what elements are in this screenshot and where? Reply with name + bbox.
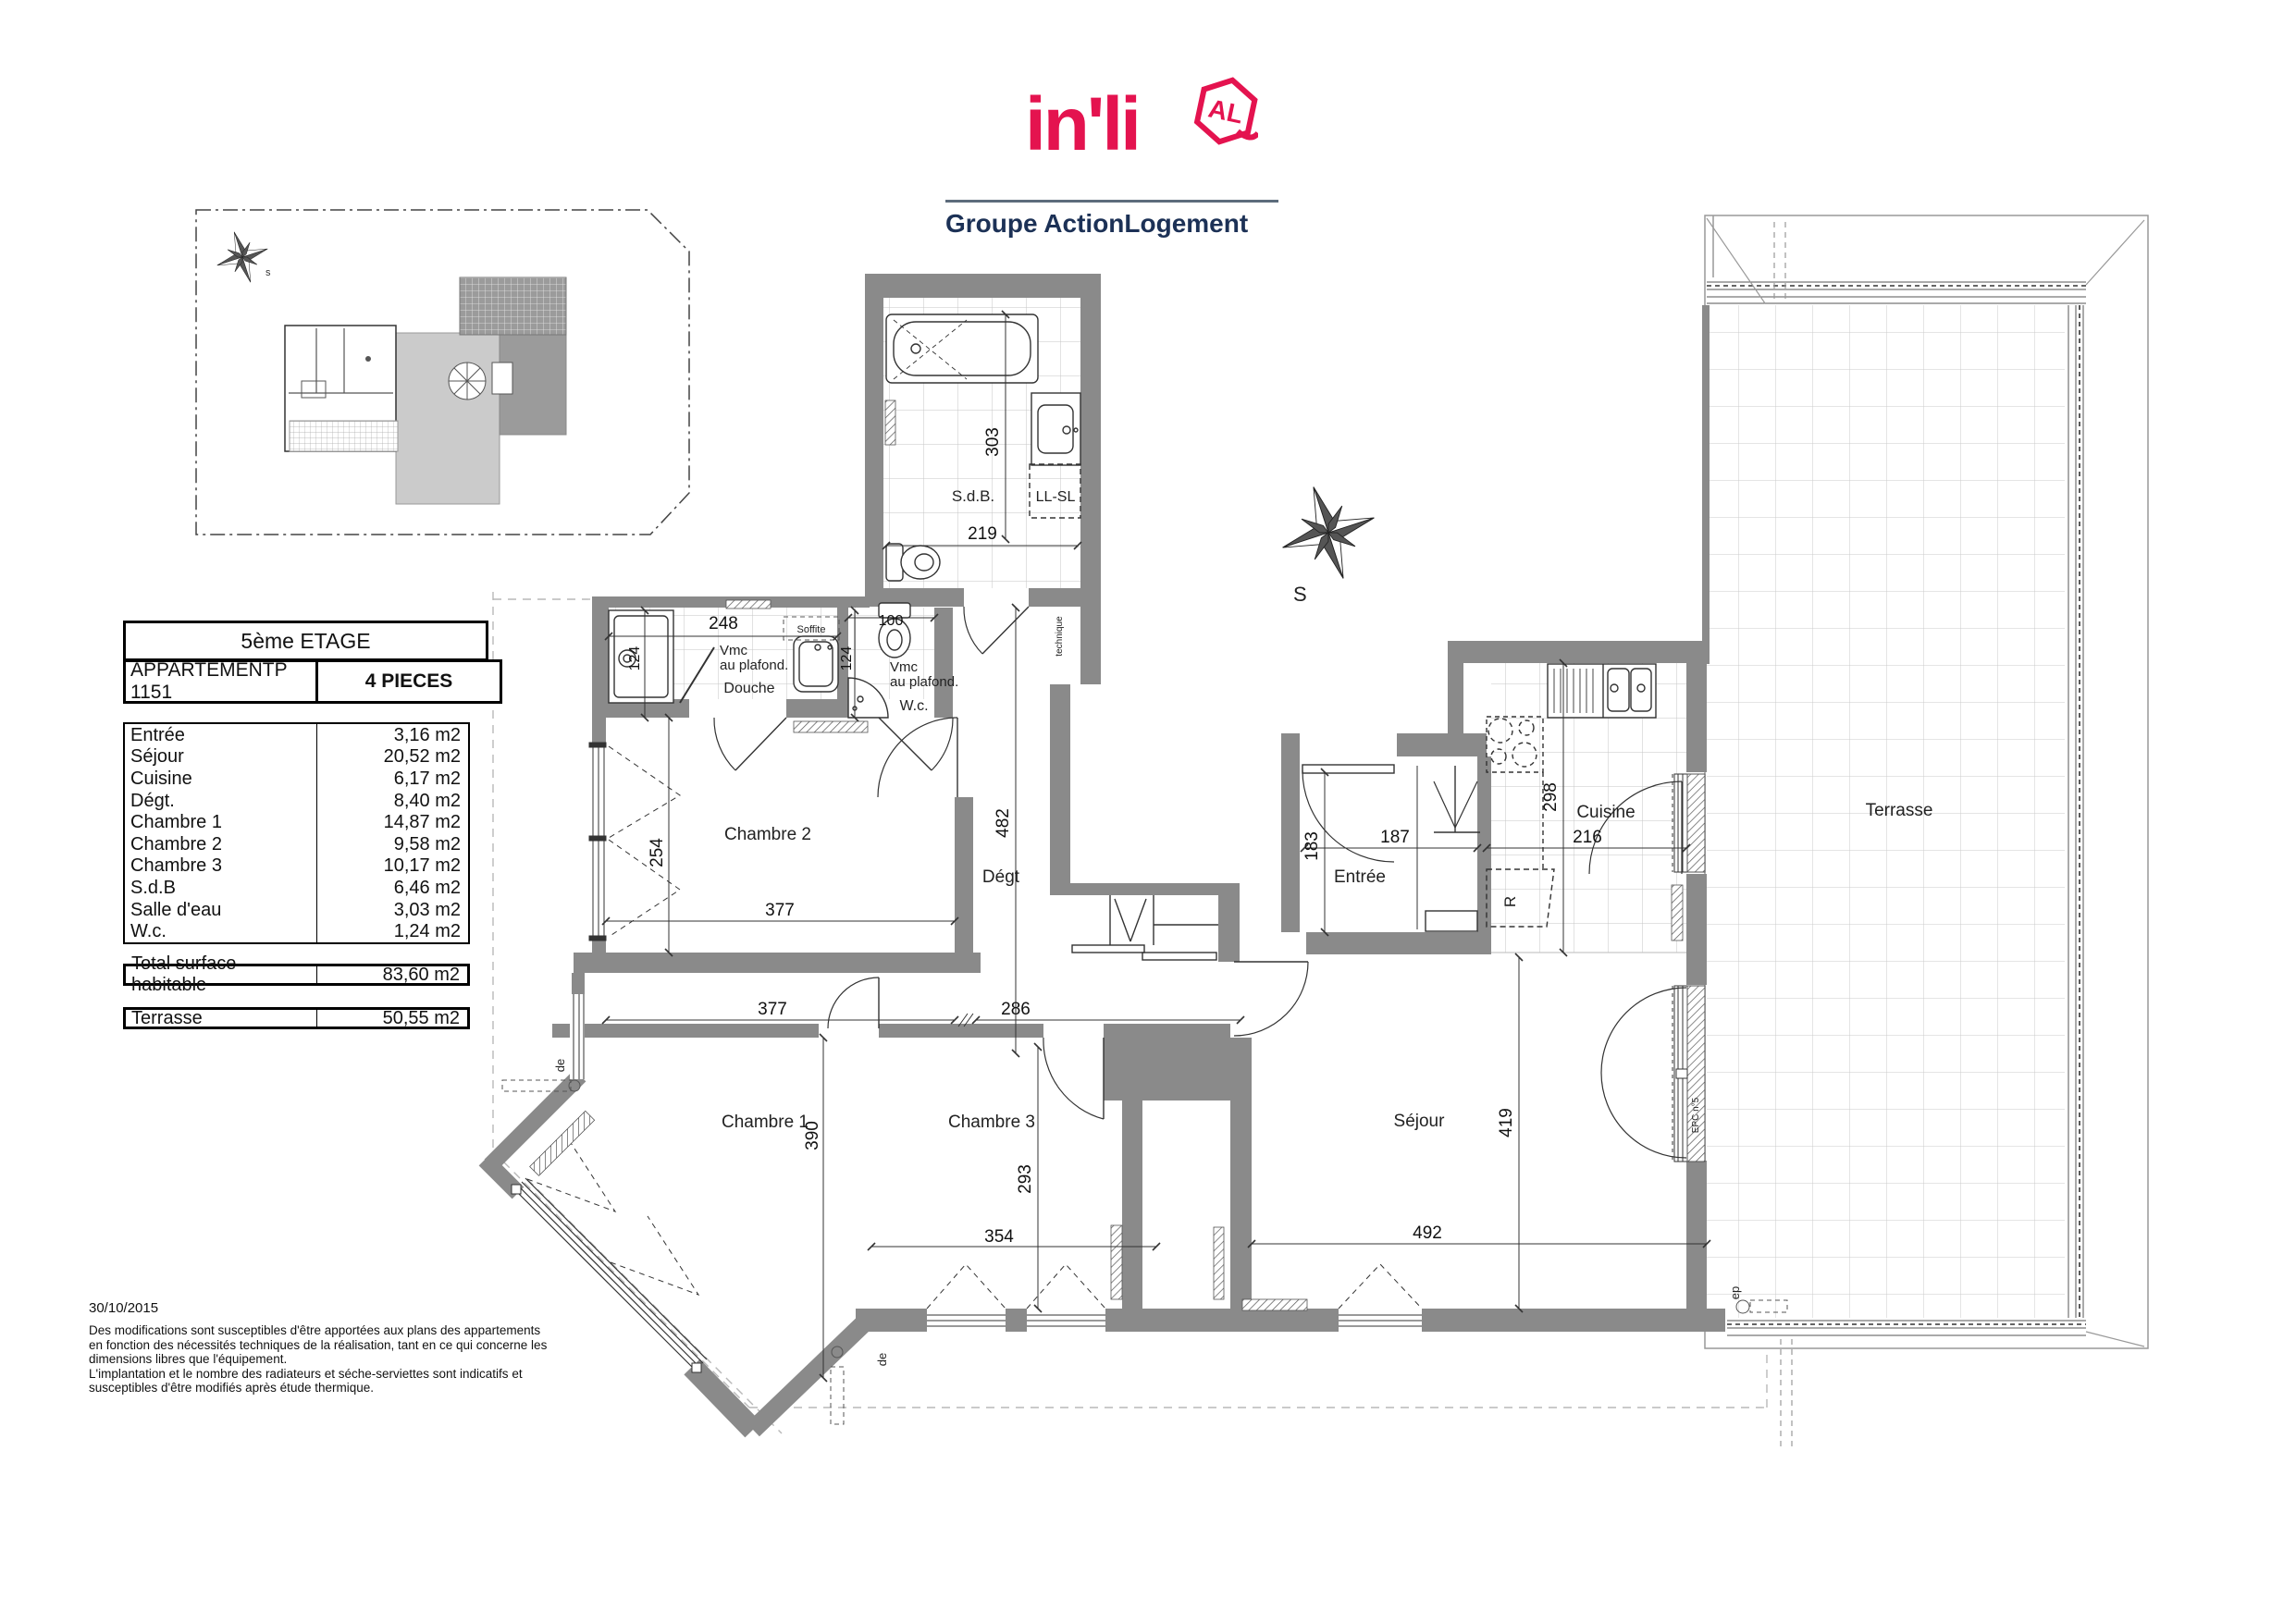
door-sejour xyxy=(1234,962,1308,1036)
apartment-row: APPARTEMENTP 1151 4 PIECES xyxy=(123,659,502,704)
room-name: Entrée xyxy=(125,726,316,744)
label-soffite: Soffite xyxy=(797,624,826,635)
terrace-label: Terrasse xyxy=(126,1010,317,1027)
logo-divider xyxy=(945,200,1278,203)
dim-entree-h: 183 xyxy=(1302,831,1322,861)
floor-plan-sheet: s xyxy=(0,0,2296,1623)
logo-tagline: Groupe ActionLogement xyxy=(945,209,1248,239)
plan-date: 30/10/2015 xyxy=(89,1300,570,1316)
label-chambre3: Chambre 3 xyxy=(948,1113,1035,1132)
radiator-sdb xyxy=(885,400,895,445)
site-plan: s xyxy=(196,210,689,535)
soffit-hatch-2 xyxy=(794,721,868,732)
soffit-hatch-1 xyxy=(726,600,771,609)
table-row: Chambre 114,87 m2 xyxy=(125,813,468,831)
window-sejour xyxy=(1339,1264,1422,1329)
label-degt: Dégt xyxy=(982,867,1020,887)
radiator-chambre3 xyxy=(1111,1225,1122,1299)
compass-south-label: S xyxy=(1293,583,1307,606)
sdb-washbasin xyxy=(1031,393,1080,465)
dim-cuisine-h: 298 xyxy=(1541,782,1561,812)
dim-wc-h: 124 xyxy=(839,646,855,671)
site-roof-terrace xyxy=(460,277,566,335)
bathtub xyxy=(886,314,1038,383)
dim-hall-right: 286 xyxy=(1001,1000,1031,1019)
logo-brand: in'li xyxy=(1025,81,1139,168)
room-name: Cuisine xyxy=(125,769,316,788)
room-area: 14,87 m2 xyxy=(316,813,468,831)
room-area: 6,46 m2 xyxy=(316,879,468,897)
footer-disclaimer: 30/10/2015 Des modifications sont suscep… xyxy=(89,1300,570,1396)
wc-toilet xyxy=(879,603,910,658)
window-chambre3-b xyxy=(1027,1264,1105,1329)
room-name: Chambre 1 xyxy=(125,813,316,831)
kitchen-sink-unit xyxy=(1548,664,1656,718)
dim-hall-left: 377 xyxy=(758,1000,787,1019)
dim-cuisine-w: 216 xyxy=(1573,828,1602,847)
apartment-type: 4 PIECES xyxy=(318,662,500,701)
logo-badge-icon: AL xyxy=(1193,74,1258,150)
table-row: Salle d'eau3,03 m2 xyxy=(125,901,468,919)
label-sejour: Séjour xyxy=(1394,1112,1446,1131)
room-area: 3,03 m2 xyxy=(316,901,468,919)
label-de-1: de xyxy=(553,1059,567,1072)
terrace-area-row: Terrasse 50,55 m2 xyxy=(123,1007,470,1029)
site-building-mass xyxy=(396,333,500,504)
french-door-sejour-terrasse xyxy=(1601,986,1705,1162)
window-chambre3-a xyxy=(927,1264,1006,1329)
room-name: Salle d'eau xyxy=(125,901,316,919)
label-vmc1-line2: au plafond. xyxy=(720,658,788,673)
label-chambre2: Chambre 2 xyxy=(724,825,811,844)
label-duct: technique xyxy=(1055,616,1065,657)
radiator-cuisine xyxy=(1672,885,1683,941)
door-salle-eau xyxy=(714,718,786,770)
room-name: S.d.B xyxy=(125,879,316,897)
label-door-ref: EPC n°5 xyxy=(1691,1097,1701,1133)
site-compass-icon xyxy=(209,224,276,290)
dim-sdb-w: 219 xyxy=(968,524,997,544)
label-de-2: de xyxy=(875,1353,889,1366)
table-row: Entrée3,16 m2 xyxy=(125,726,468,744)
door-chambre2 xyxy=(878,718,957,797)
compass-icon xyxy=(1267,472,1389,593)
room-name: Chambre 2 xyxy=(125,835,316,854)
label-sdb: S.d.B. xyxy=(952,487,994,505)
dim-ch2-w: 377 xyxy=(765,901,795,920)
disclaimer-line: L'implantation et le nombre des radiateu… xyxy=(89,1367,570,1382)
room-area: 8,40 m2 xyxy=(316,792,468,810)
door-chambre1 xyxy=(828,977,879,1028)
room-name: Chambre 3 xyxy=(125,856,316,875)
disclaimer-line: en fonction des nécessités techniques de… xyxy=(89,1338,570,1353)
dim-sejour-h: 419 xyxy=(1497,1108,1516,1137)
site-elevator-icon xyxy=(492,363,512,394)
terrace-value: 50,55 m2 xyxy=(317,1008,467,1029)
label-fridge: R xyxy=(1501,896,1519,907)
door-sdb xyxy=(964,607,1029,654)
tiled-floors xyxy=(609,298,2065,1318)
site-unit-dot xyxy=(365,356,371,362)
door-chambre3 xyxy=(1043,1038,1104,1119)
table-row: Séjour20,52 m2 xyxy=(125,747,468,766)
room-area-table: Entrée3,16 m2 Séjour20,52 m2 Cuisine6,17… xyxy=(123,722,470,944)
radiator-sejour-bottom xyxy=(1242,1299,1307,1310)
label-wc: W.c. xyxy=(899,698,928,714)
dim-sejour-w: 492 xyxy=(1413,1223,1442,1243)
label-ep: ep xyxy=(1728,1286,1742,1299)
room-name: Séjour xyxy=(125,747,316,766)
site-terrace-tiles xyxy=(290,421,398,451)
label-vmc2-line1: Vmc xyxy=(890,659,919,675)
label-douche: Douche xyxy=(723,681,774,696)
label-entree: Entrée xyxy=(1334,867,1386,887)
label-vmc2-line2: au plafond. xyxy=(890,674,958,690)
dim-ch3-w: 354 xyxy=(984,1227,1014,1247)
total-area-row: Total surface habitable 83,60 m2 xyxy=(123,964,470,986)
room-name: W.c. xyxy=(125,922,316,941)
door-wc xyxy=(879,718,953,770)
site-stair-icon xyxy=(449,363,486,400)
site-compass-label: s xyxy=(265,267,271,278)
room-area: 3,16 m2 xyxy=(316,726,468,744)
table-row: Chambre 29,58 m2 xyxy=(125,835,468,854)
room-area: 9,58 m2 xyxy=(316,835,468,854)
table-row: W.c.1,24 m2 xyxy=(125,922,468,941)
table-row: Dégt.8,40 m2 xyxy=(125,792,468,810)
table-divider xyxy=(316,724,317,942)
apartment-number: APPARTEMENTP 1151 xyxy=(126,662,318,701)
label-chambre1: Chambre 1 xyxy=(722,1113,809,1132)
dim-ch3-h: 293 xyxy=(1016,1164,1035,1194)
total-value: 83,60 m2 xyxy=(317,965,467,986)
disclaimer-line: Des modifications sont susceptibles d'êt… xyxy=(89,1323,570,1338)
label-vmc1-line1: Vmc xyxy=(720,643,748,658)
dim-sde-h: 124 xyxy=(627,646,643,671)
room-area: 10,17 m2 xyxy=(316,856,468,875)
dim-sde-w: 248 xyxy=(709,614,738,633)
dim-wc-w: 100 xyxy=(879,613,904,629)
room-name: Dégt. xyxy=(125,792,316,810)
floor-title: 5ème ETAGE xyxy=(123,621,488,661)
label-terrasse: Terrasse xyxy=(1866,801,1933,820)
room-area: 6,17 m2 xyxy=(316,769,468,788)
dim-ch2-h: 254 xyxy=(648,838,667,867)
degt-closet xyxy=(1072,895,1218,960)
table-row: S.d.B6,46 m2 xyxy=(125,879,468,897)
salle-eau-basin xyxy=(794,636,838,692)
table-row: Cuisine6,17 m2 xyxy=(125,769,468,788)
label-cuisine: Cuisine xyxy=(1576,803,1635,822)
window-chambre1-left xyxy=(570,994,585,1079)
room-area: 20,52 m2 xyxy=(316,747,468,766)
total-label: Total surface habitable xyxy=(126,966,317,983)
disclaimer-line: dimensions libres que l'équipement. xyxy=(89,1352,570,1367)
sdb-toilet xyxy=(886,544,940,581)
table-row: Chambre 310,17 m2 xyxy=(125,856,468,875)
disclaimer-line: susceptibles d'être modifiés après étude… xyxy=(89,1381,570,1396)
radiator-sejour-left xyxy=(1214,1227,1224,1299)
dim-sdb-h: 303 xyxy=(983,427,1003,457)
dim-entree-w: 187 xyxy=(1380,828,1410,847)
label-llsl: LL-SL xyxy=(1036,489,1076,505)
dim-degt-h: 482 xyxy=(994,808,1013,838)
room-area: 1,24 m2 xyxy=(316,922,468,941)
